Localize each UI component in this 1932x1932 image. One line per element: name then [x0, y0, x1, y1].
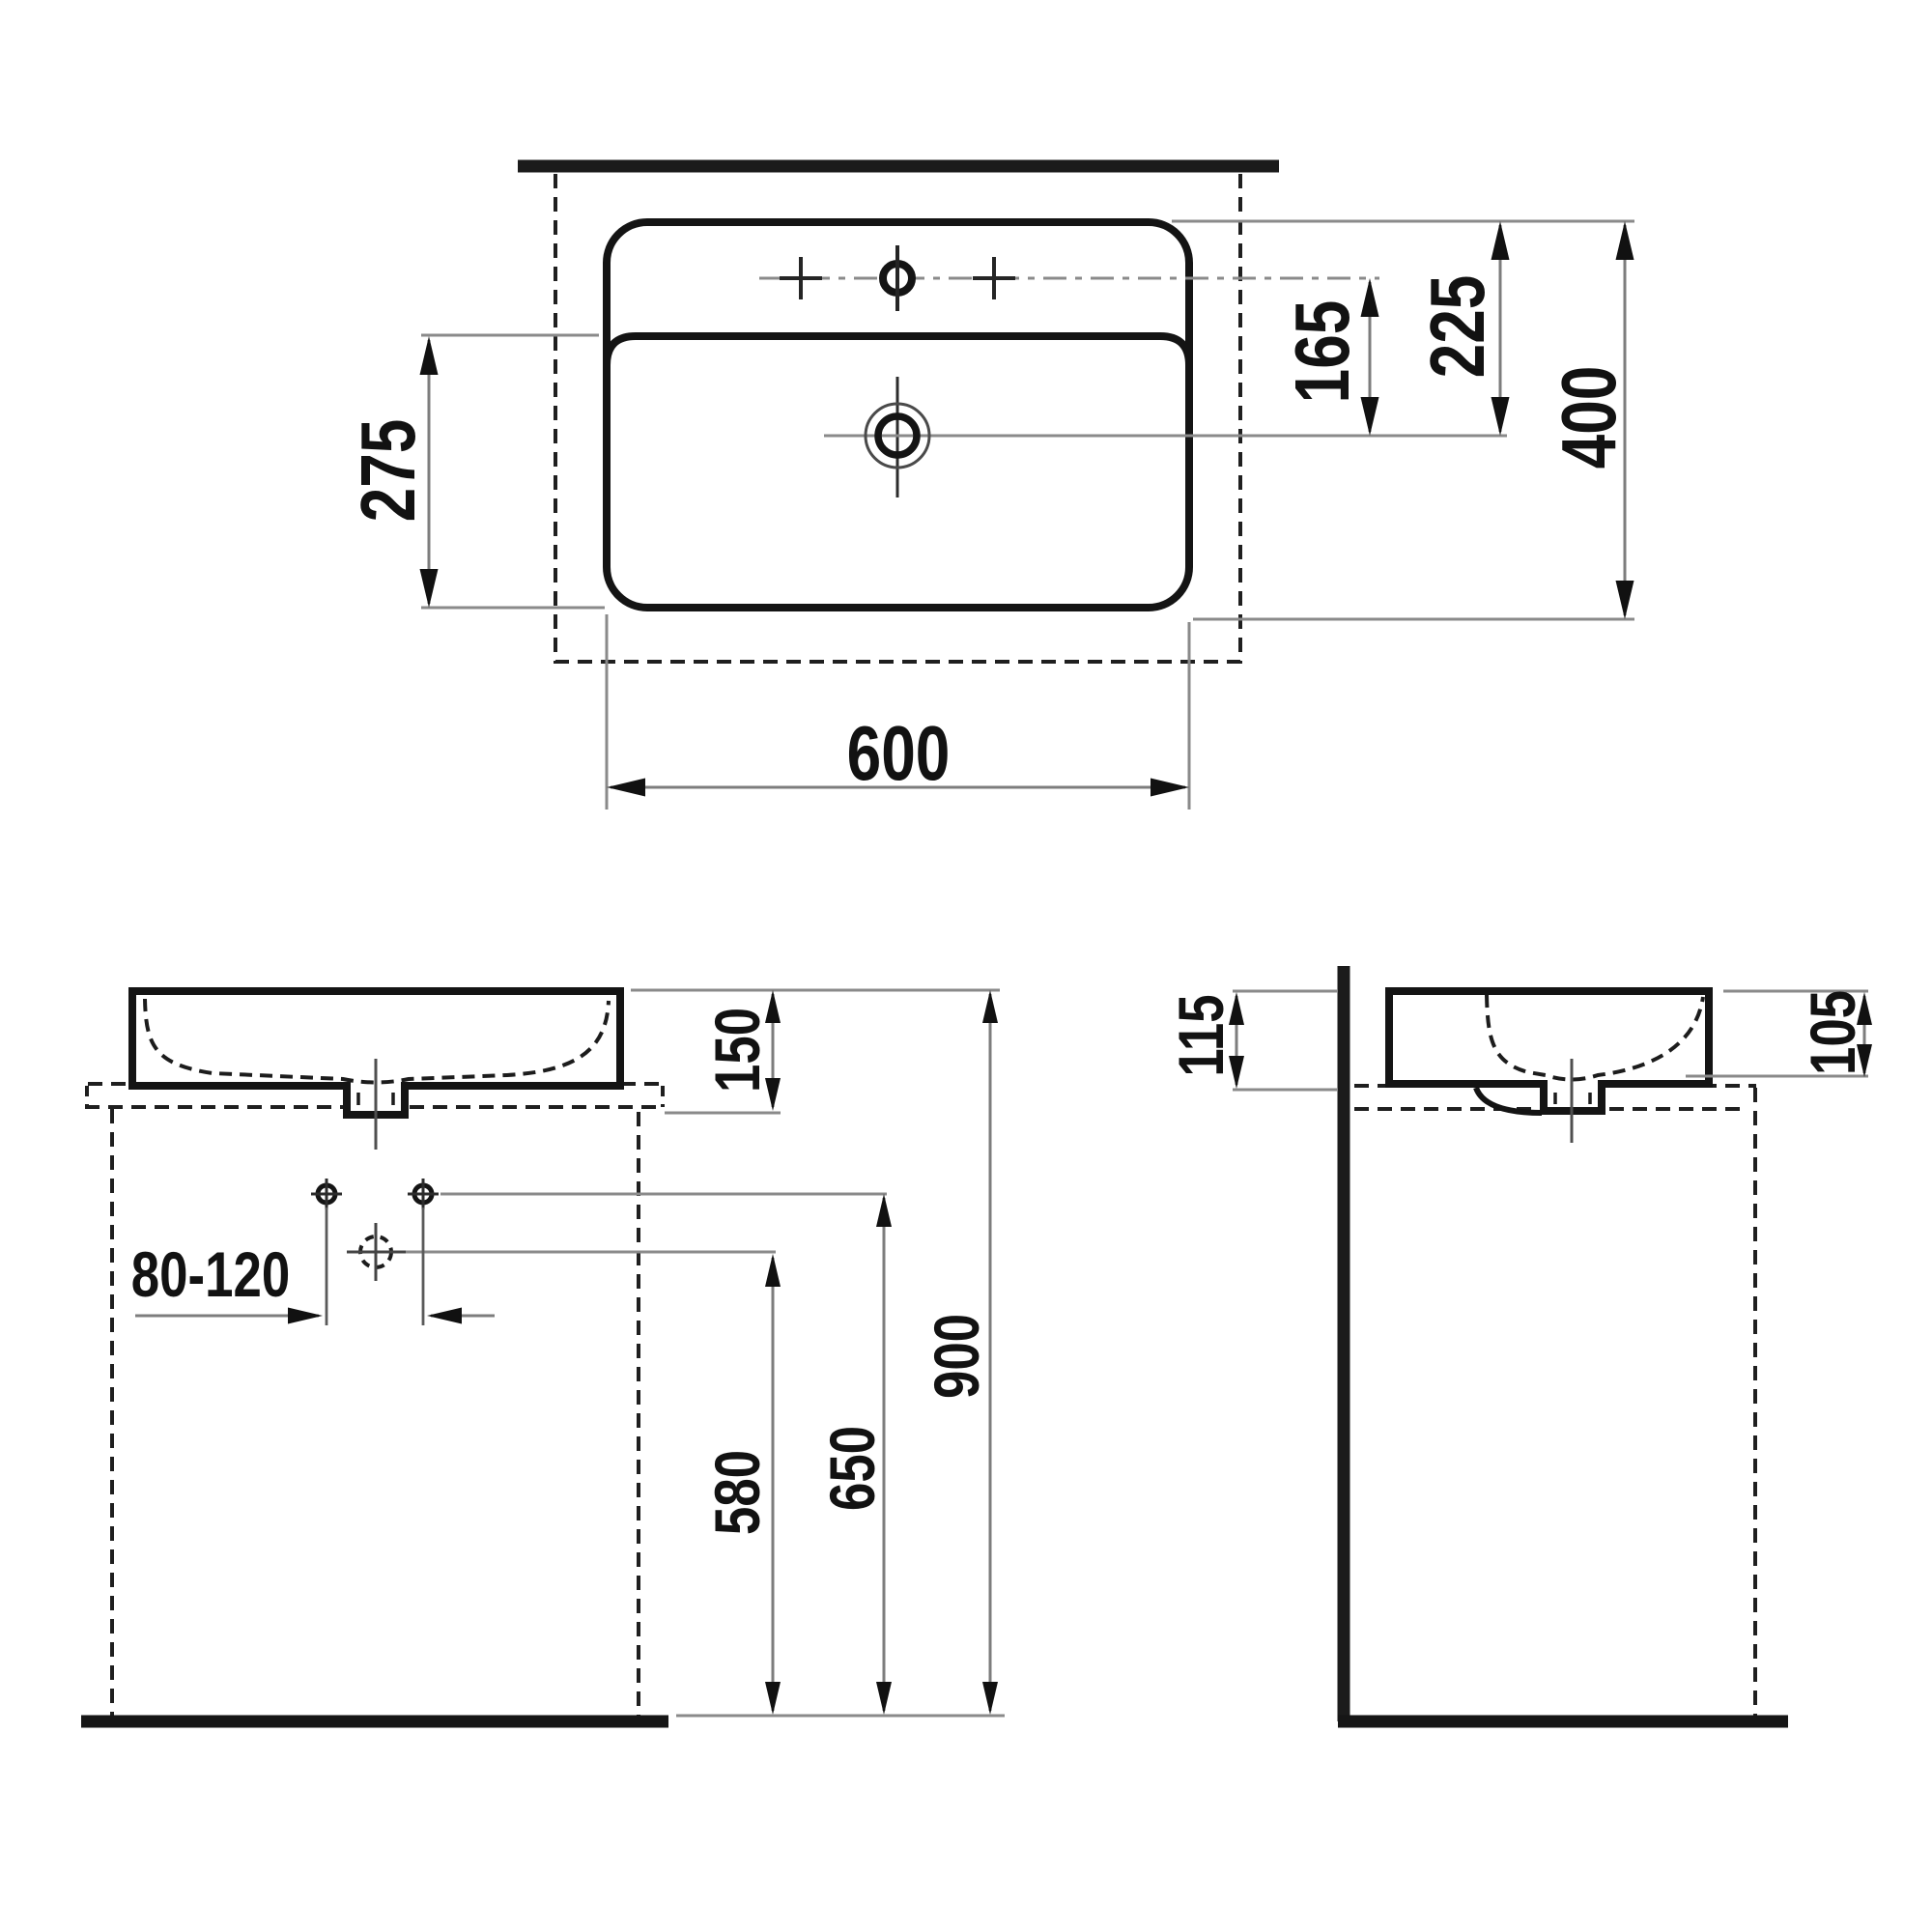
svg-text:165: 165 [1279, 300, 1365, 404]
svg-text:80-120: 80-120 [131, 1238, 290, 1310]
svg-text:275: 275 [345, 419, 431, 523]
svg-text:580: 580 [701, 1450, 773, 1535]
svg-text:105: 105 [1797, 990, 1868, 1075]
svg-text:600: 600 [847, 710, 951, 796]
svg-text:400: 400 [1546, 366, 1632, 469]
svg-text:150: 150 [701, 1008, 773, 1093]
svg-text:115: 115 [1165, 994, 1236, 1076]
svg-text:650: 650 [816, 1426, 888, 1511]
svg-text:225: 225 [1414, 275, 1500, 379]
svg-text:900: 900 [921, 1314, 992, 1399]
